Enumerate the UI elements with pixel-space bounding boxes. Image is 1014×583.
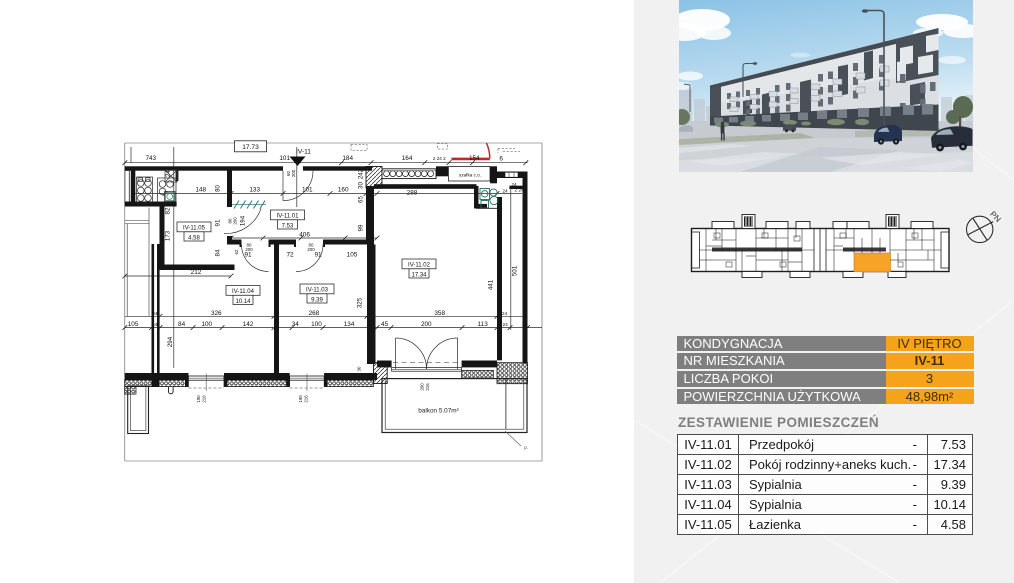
svg-text:216: 216 <box>425 383 430 391</box>
svg-text:743: 743 <box>145 155 156 162</box>
svg-text:142: 142 <box>243 321 254 328</box>
svg-text:441: 441 <box>488 279 495 290</box>
svg-text:242: 242 <box>358 168 365 179</box>
svg-text:9.39: 9.39 <box>311 297 323 303</box>
svg-text:24: 24 <box>152 311 158 317</box>
svg-text:200: 200 <box>233 217 238 225</box>
svg-text:szafka c.o.: szafka c.o. <box>459 173 481 178</box>
svg-text:325: 325 <box>357 297 364 308</box>
svg-text:105: 105 <box>128 321 139 328</box>
svg-text:133: 133 <box>249 187 260 194</box>
svg-text:6: 6 <box>499 156 503 163</box>
svg-text:IV-11.05: IV-11.05 <box>183 226 206 232</box>
svg-text:200: 200 <box>307 247 315 252</box>
svg-text:173: 173 <box>165 230 172 241</box>
svg-text:84: 84 <box>178 321 186 328</box>
svg-text:IV-11.01: IV-11.01 <box>277 214 300 220</box>
svg-text:164: 164 <box>402 155 413 162</box>
svg-text:200: 200 <box>421 321 432 328</box>
svg-text:113: 113 <box>478 321 489 328</box>
svg-text:balkon 5.07m²: balkon 5.07m² <box>418 408 459 415</box>
svg-text:80: 80 <box>216 185 222 192</box>
svg-text:216: 216 <box>201 395 206 403</box>
svg-text:101: 101 <box>302 187 313 194</box>
svg-text:91: 91 <box>215 219 222 226</box>
svg-text:91: 91 <box>314 252 322 259</box>
svg-text:190: 190 <box>298 395 303 403</box>
svg-text:100: 100 <box>311 321 322 328</box>
svg-text:45: 45 <box>381 321 389 328</box>
svg-text:268: 268 <box>309 310 320 317</box>
svg-text:72: 72 <box>286 252 294 259</box>
svg-text:200: 200 <box>245 247 253 252</box>
svg-text:154: 154 <box>469 155 480 162</box>
svg-text:7.53: 7.53 <box>282 223 294 229</box>
svg-text:2 24: 2 24 <box>515 188 524 193</box>
svg-text:212: 212 <box>191 269 202 276</box>
svg-text:IV-11: IV-11 <box>296 149 311 156</box>
svg-text:10.14: 10.14 <box>235 299 251 305</box>
svg-text:24: 24 <box>152 322 158 328</box>
svg-text:326: 326 <box>211 310 222 317</box>
svg-text:101: 101 <box>279 155 290 162</box>
svg-text:160: 160 <box>338 187 349 194</box>
svg-text:2 24 2: 2 24 2 <box>433 156 446 161</box>
svg-text:194: 194 <box>240 215 247 226</box>
svg-text:99: 99 <box>358 224 365 231</box>
svg-text:184: 184 <box>342 155 353 162</box>
svg-text:105: 105 <box>347 252 358 259</box>
svg-text:82: 82 <box>165 207 172 214</box>
svg-text:100: 100 <box>201 321 212 328</box>
svg-text:17.34: 17.34 <box>411 272 427 278</box>
svg-text:294: 294 <box>167 336 174 347</box>
svg-text:24: 24 <box>511 182 517 187</box>
svg-text:358: 358 <box>434 310 445 317</box>
svg-text:406: 406 <box>299 231 310 238</box>
svg-text:501: 501 <box>512 265 519 276</box>
svg-text:p.: p. <box>524 445 528 450</box>
svg-text:24: 24 <box>502 189 508 194</box>
svg-text:1: 1 <box>522 321 526 328</box>
svg-text:190: 190 <box>196 395 201 403</box>
svg-text:24: 24 <box>503 322 509 328</box>
svg-text:84: 84 <box>215 249 222 256</box>
svg-text:4.58: 4.58 <box>188 235 200 241</box>
svg-text:30: 30 <box>358 182 365 189</box>
svg-text:288: 288 <box>407 190 418 197</box>
svg-text:62: 62 <box>234 249 239 254</box>
svg-text:24: 24 <box>502 311 508 317</box>
svg-text:242: 242 <box>165 166 172 177</box>
svg-text:17.73: 17.73 <box>242 144 259 151</box>
svg-text:IV-11.03: IV-11.03 <box>306 288 329 294</box>
svg-text:200: 200 <box>291 169 296 177</box>
svg-text:91: 91 <box>244 252 252 259</box>
svg-text:IV-11.02: IV-11.02 <box>408 263 431 269</box>
svg-text:65: 65 <box>358 196 365 203</box>
svg-text:148: 148 <box>195 187 206 194</box>
svg-text:200: 200 <box>420 383 425 391</box>
svg-text:IV-11.04: IV-11.04 <box>232 289 255 295</box>
svg-text:30: 30 <box>357 366 362 371</box>
svg-text:34: 34 <box>292 321 300 328</box>
svg-text:216: 216 <box>303 395 308 403</box>
svg-text:134: 134 <box>344 321 355 328</box>
